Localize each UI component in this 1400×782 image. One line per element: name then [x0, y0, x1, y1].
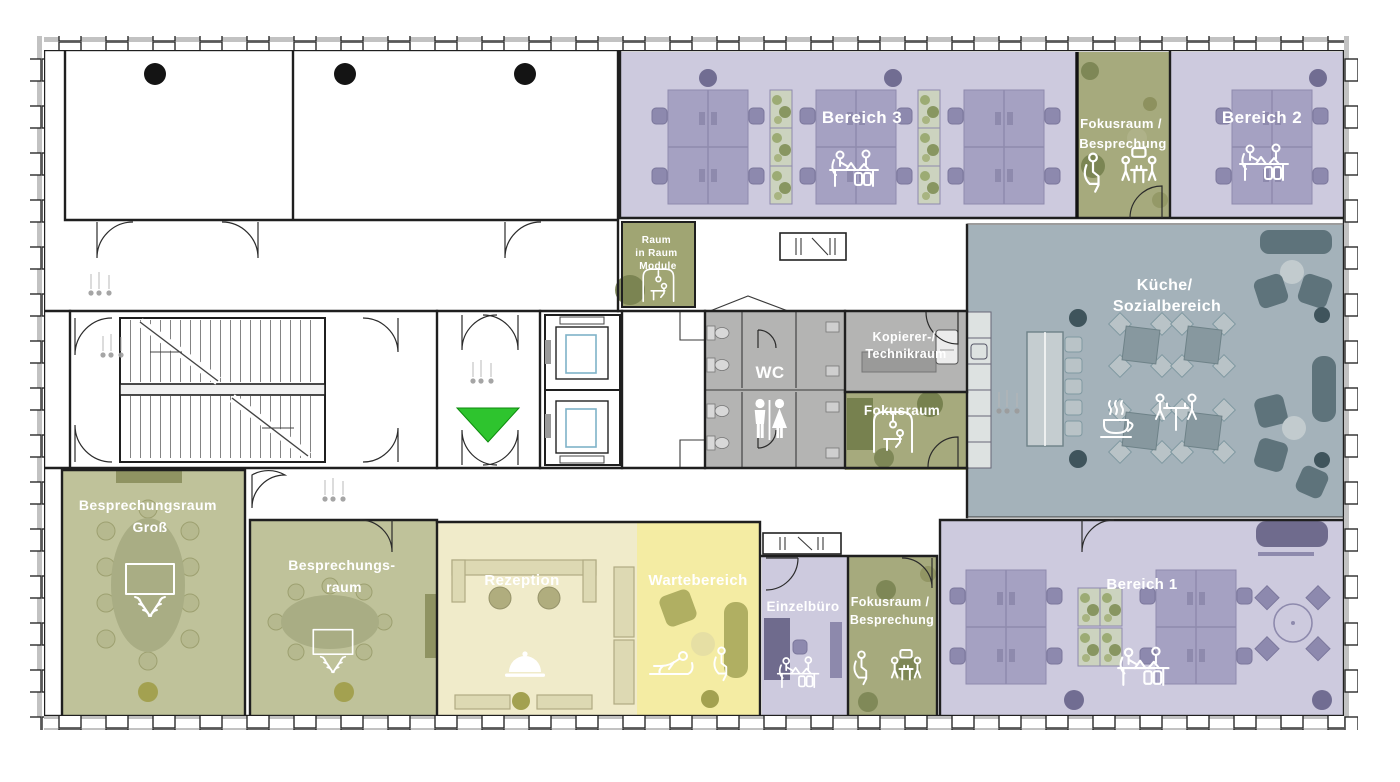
label-bereich-2: Bereich 2 — [1222, 108, 1302, 127]
label-rezeption: Rezeption — [484, 572, 559, 589]
label-bereich-1: Bereich 1 — [1106, 576, 1177, 593]
elevators — [545, 315, 620, 465]
raum-in-raum-furniture — [615, 275, 645, 305]
zone-rezeption — [437, 522, 637, 716]
label-einzelbuero: Einzelbüro — [766, 599, 839, 614]
floor-plan-canvas: Bereich 3 Fokusraum / Besprechung Bereic… — [0, 0, 1400, 782]
label-wartebereich: Wartebereich — [648, 572, 747, 589]
label-fokusraum-mitte: Fokusraum — [864, 403, 940, 418]
stair-core — [120, 318, 325, 462]
label-raum-in-raum: Raum in Raum Module — [635, 235, 680, 272]
label-wc: WC — [755, 363, 784, 382]
label-bereich-3: Bereich 3 — [822, 108, 902, 127]
